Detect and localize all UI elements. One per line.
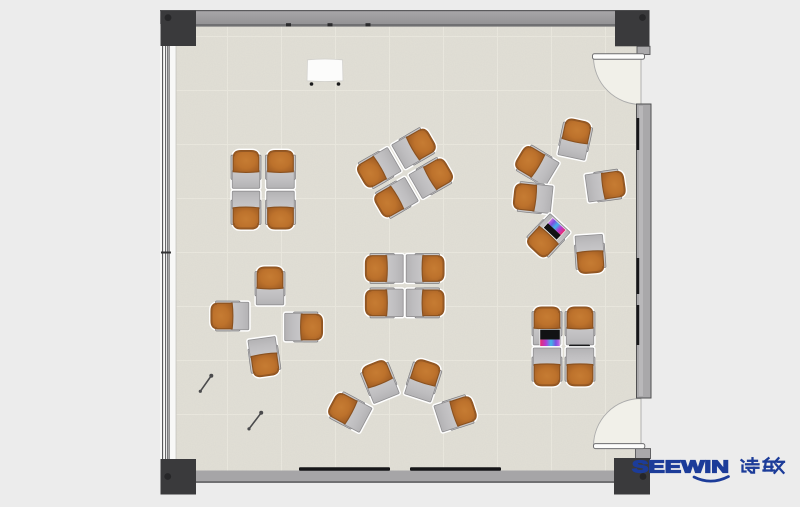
svg-text:SEEWIN: SEEWIN — [632, 457, 729, 477]
